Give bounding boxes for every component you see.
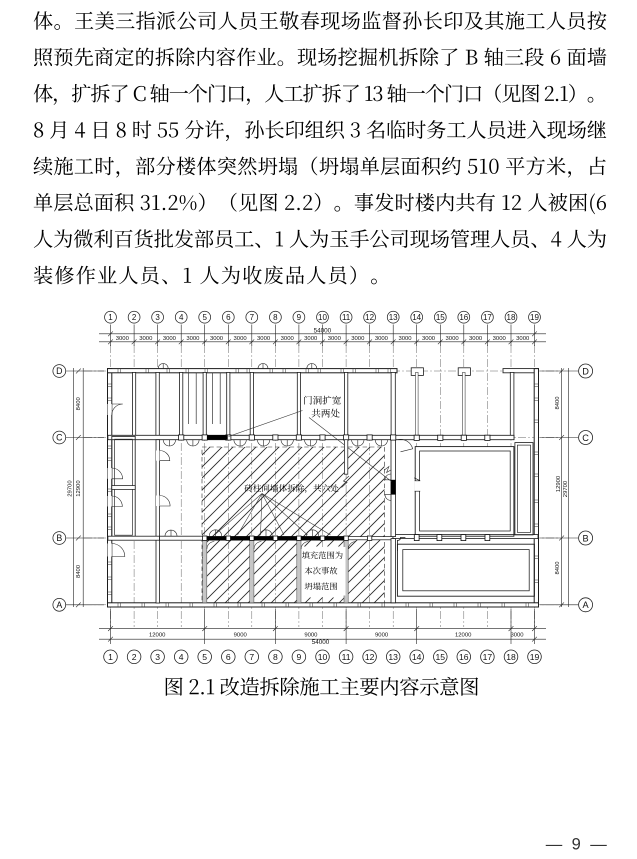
svg-text:1: 1 [108,652,113,662]
svg-text:—: — [590,836,607,854]
svg-text:7: 7 [250,313,255,322]
svg-text:14: 14 [412,313,421,322]
svg-text:54000: 54000 [314,328,332,335]
svg-text:8400: 8400 [555,561,561,575]
svg-text:8: 8 [273,652,278,662]
svg-text:3000: 3000 [234,336,248,342]
svg-text:B: B [583,533,589,543]
svg-text:12: 12 [365,313,374,322]
svg-text:8400: 8400 [76,564,82,578]
svg-text:17: 17 [483,313,492,322]
svg-text:C: C [582,433,589,443]
svg-text:3000: 3000 [328,336,342,342]
svg-text:5: 5 [202,652,207,662]
svg-text:9: 9 [572,836,581,854]
svg-text:12000: 12000 [455,633,472,639]
svg-text:6: 6 [226,313,231,322]
svg-text:13: 13 [389,313,398,322]
svg-text:8400: 8400 [555,396,561,410]
svg-text:8400: 8400 [76,397,82,411]
svg-text:12000: 12000 [149,633,166,639]
svg-text:3: 3 [155,313,160,322]
svg-text:29700: 29700 [67,480,73,497]
svg-text:A: A [56,600,62,610]
svg-text:3000: 3000 [116,336,130,342]
svg-text:9000: 9000 [234,633,248,639]
svg-text:—: — [546,836,563,854]
svg-text:3000: 3000 [139,336,153,342]
svg-text:16: 16 [459,313,468,322]
svg-text:11: 11 [342,313,351,322]
svg-text:B: B [56,533,62,543]
svg-text:29700: 29700 [563,480,569,497]
svg-text:3000: 3000 [304,336,318,342]
svg-text:4: 4 [179,313,184,322]
svg-text:3000: 3000 [210,336,224,342]
svg-text:3000: 3000 [516,336,530,342]
svg-text:12900: 12900 [76,480,82,497]
svg-text:3000: 3000 [398,336,412,342]
svg-text:9: 9 [297,652,302,662]
svg-text:19: 19 [530,313,539,322]
svg-text:12: 12 [365,652,375,662]
svg-text:18: 18 [507,313,516,322]
svg-text:3000: 3000 [351,336,365,342]
svg-text:3000: 3000 [469,336,483,342]
svg-text:17: 17 [483,652,493,662]
svg-text:1: 1 [108,313,113,322]
svg-text:3000: 3000 [510,633,524,639]
svg-text:5: 5 [202,313,207,322]
svg-text:13: 13 [388,652,398,662]
svg-text:8: 8 [273,313,278,322]
svg-text:10: 10 [318,652,328,662]
svg-text:9000: 9000 [304,633,318,639]
svg-text:3000: 3000 [186,336,200,342]
svg-text:6: 6 [226,652,231,662]
svg-text:7: 7 [249,652,254,662]
svg-text:16: 16 [459,652,469,662]
svg-text:9000: 9000 [375,633,389,639]
svg-text:C: C [56,433,63,443]
svg-text:3: 3 [155,652,160,662]
svg-text:4: 4 [179,652,184,662]
svg-text:3000: 3000 [163,336,177,342]
svg-text:3000: 3000 [375,336,389,342]
svg-text:12900: 12900 [556,475,562,492]
svg-text:15: 15 [436,652,446,662]
svg-text:14: 14 [412,652,422,662]
svg-text:3000: 3000 [446,336,460,342]
svg-text:D: D [56,366,62,376]
svg-text:2: 2 [132,652,137,662]
svg-text:54000: 54000 [312,639,330,646]
svg-text:15: 15 [436,313,445,322]
svg-text:10: 10 [318,313,327,322]
svg-text:3000: 3000 [281,336,295,342]
svg-text:3000: 3000 [422,336,436,342]
svg-text:2: 2 [132,313,137,322]
svg-text:11: 11 [342,652,351,662]
svg-text:3000: 3000 [257,336,271,342]
svg-text:19: 19 [530,652,540,662]
svg-text:A: A [583,600,590,610]
svg-text:3000: 3000 [493,336,507,342]
svg-text:9: 9 [297,313,302,322]
svg-text:18: 18 [506,652,516,662]
svg-text:D: D [582,366,589,376]
